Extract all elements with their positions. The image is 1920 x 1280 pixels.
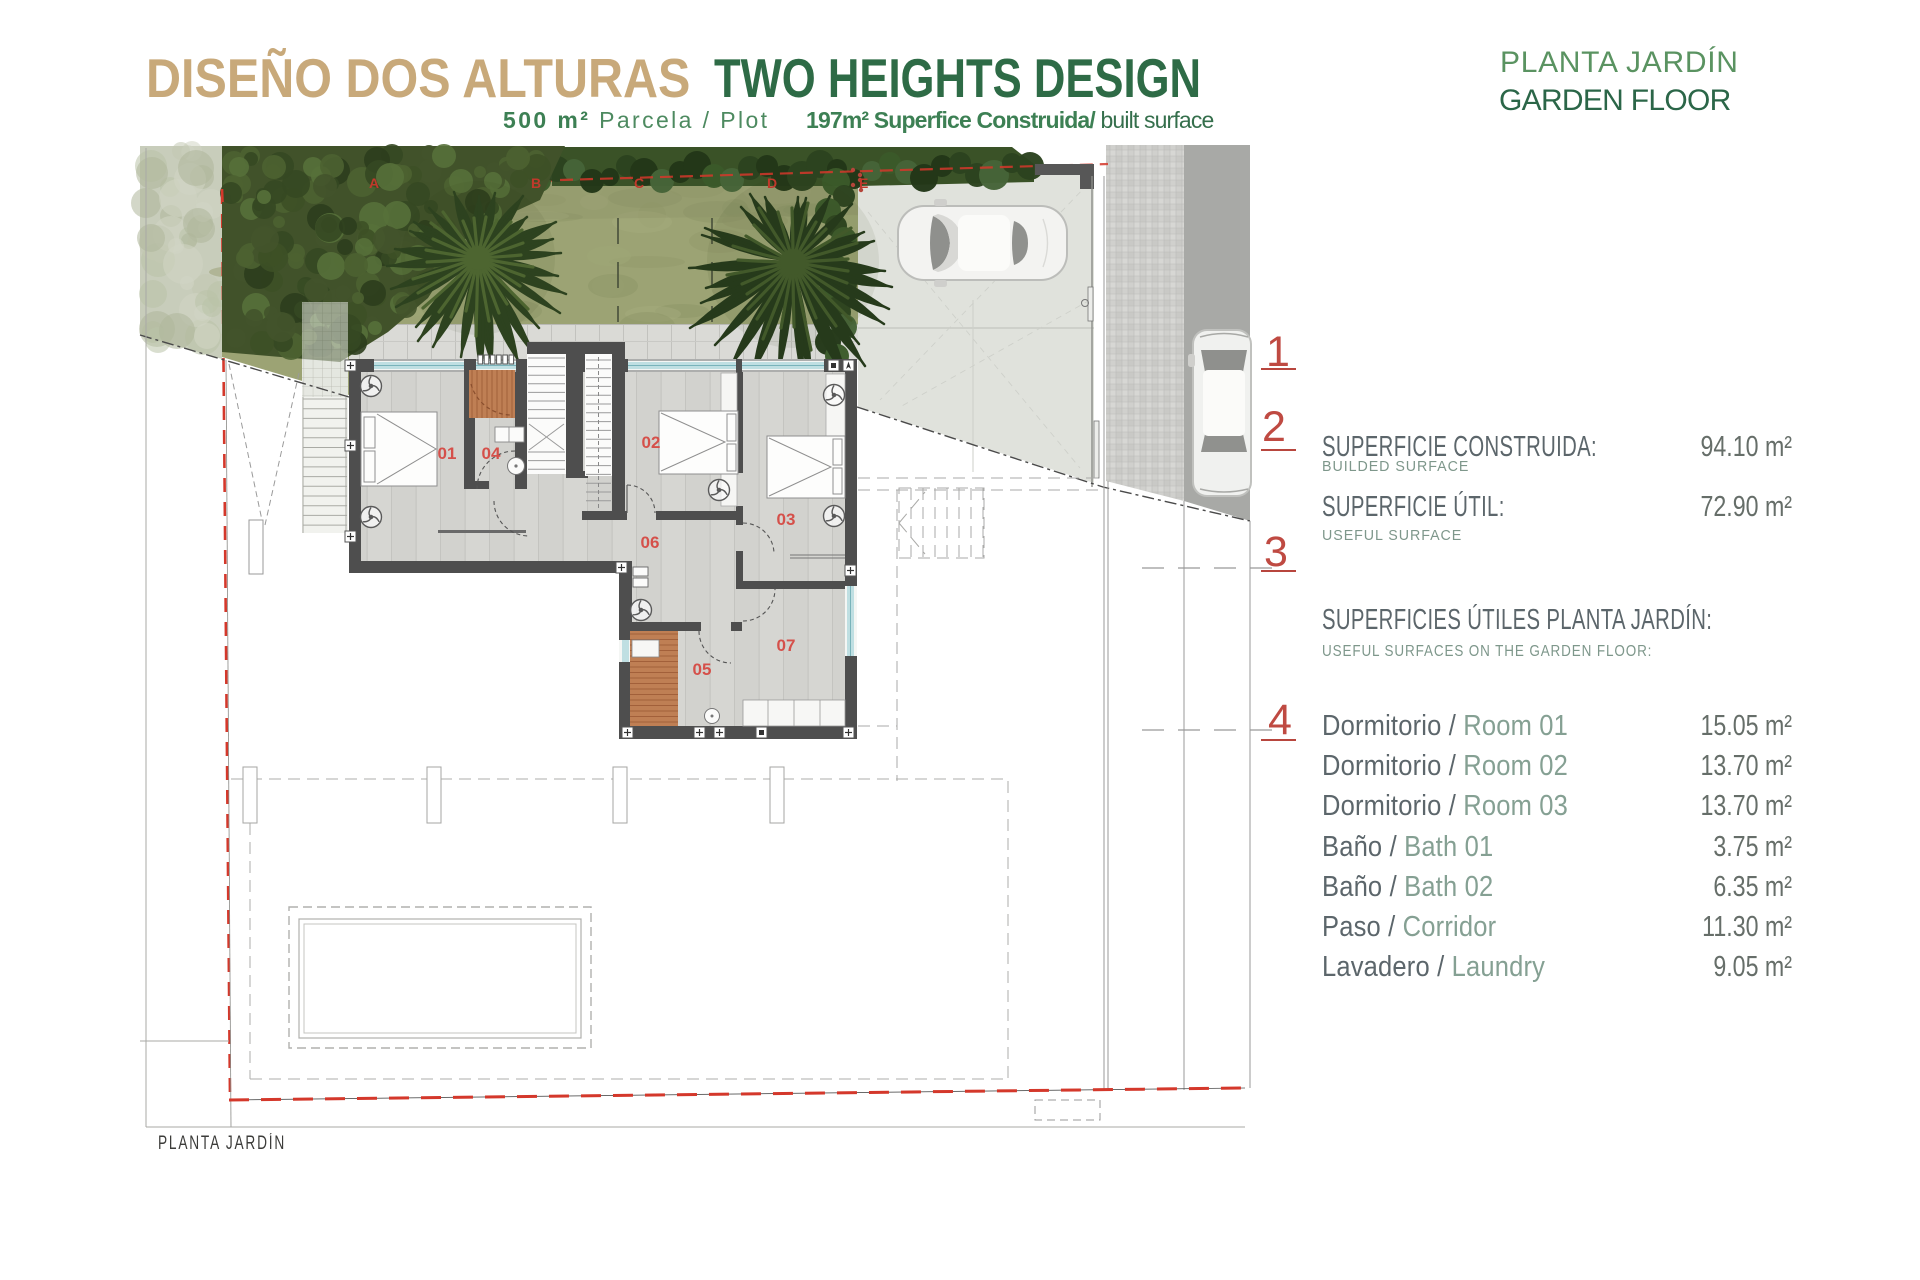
svg-text:C: C <box>634 175 644 191</box>
svg-text:A: A <box>369 175 379 191</box>
svg-text:06: 06 <box>641 533 660 552</box>
svg-text:B: B <box>531 175 541 191</box>
svg-text:D: D <box>767 175 777 191</box>
svg-text:04: 04 <box>482 444 501 463</box>
svg-text:07: 07 <box>777 636 796 655</box>
svg-text:05: 05 <box>693 660 712 679</box>
svg-text:01: 01 <box>438 444 457 463</box>
svg-text:03: 03 <box>777 510 796 529</box>
svg-text:02: 02 <box>642 433 661 452</box>
svg-text:E: E <box>859 175 868 191</box>
